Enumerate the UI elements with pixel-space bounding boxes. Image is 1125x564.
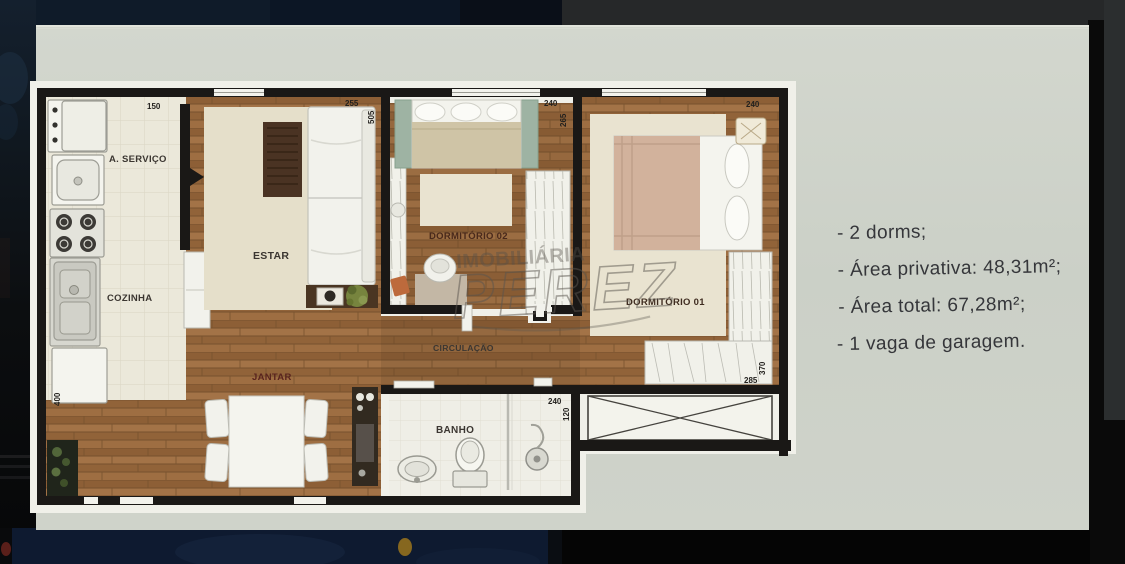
svg-text:- 2 dorms;: - 2 dorms;	[837, 221, 927, 244]
svg-text:505: 505	[367, 110, 376, 124]
svg-text:JANTAR: JANTAR	[252, 372, 292, 383]
svg-text:255: 255	[345, 99, 359, 108]
svg-text:240: 240	[746, 100, 760, 109]
svg-text:DORMITÓRIO 02: DORMITÓRIO 02	[429, 230, 508, 242]
svg-text:- Área privativa: 48,31m²;: - Área privativa: 48,31m²;	[837, 256, 1061, 281]
svg-text:BANHO: BANHO	[436, 425, 474, 436]
svg-text:ESTAR: ESTAR	[253, 250, 289, 262]
svg-text:- Área total: 67,28m²;: - Área total: 67,28m²;	[838, 294, 1026, 318]
svg-text:150: 150	[147, 102, 161, 111]
svg-text:120: 120	[562, 407, 571, 421]
svg-text:CIRCULAÇÃO: CIRCULAÇÃO	[433, 343, 494, 353]
svg-text:400: 400	[53, 392, 62, 406]
svg-text:285: 285	[744, 376, 758, 385]
svg-text:265: 265	[559, 113, 568, 127]
svg-text:370: 370	[758, 361, 767, 375]
svg-text:A. SERVIÇO: A. SERVIÇO	[109, 154, 167, 165]
svg-text:240: 240	[548, 397, 562, 406]
svg-text:- 1 vaga de garagem.: - 1 vaga de garagem.	[837, 331, 1026, 355]
svg-text:PEREZ: PEREZ	[450, 250, 681, 333]
svg-text:240: 240	[544, 99, 558, 108]
svg-text:COZINHA: COZINHA	[107, 293, 152, 304]
